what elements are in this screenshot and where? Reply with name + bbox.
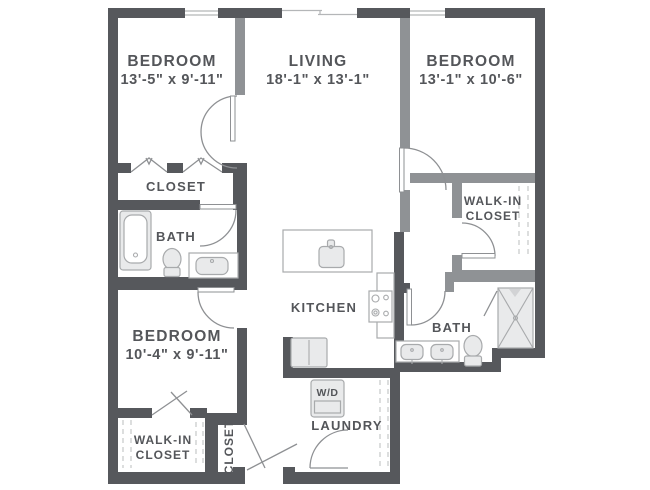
door-leaf-bath-1	[200, 205, 236, 210]
door-arc-laundry	[310, 430, 348, 468]
room-label-closet-1: CLOSET	[146, 179, 206, 194]
room-label-bedroom-3: BEDROOM	[132, 328, 221, 345]
room-label-bath-1: BATH	[156, 229, 196, 244]
door-arc-bath-1	[200, 210, 236, 246]
kitchen-island	[283, 230, 372, 272]
sink-vanity-bath-2	[396, 341, 459, 364]
door-leaf-bedroom-2	[400, 148, 405, 192]
door-leaf-bedroom-3	[198, 288, 234, 293]
toilet-bath-2	[464, 336, 482, 367]
door-leaf-bedroom-1	[231, 96, 236, 141]
island-sink	[319, 247, 344, 268]
door-arc-bedroom-2	[404, 148, 446, 190]
room-dims-bedroom-2: 13'-1" x 10'-6"	[419, 72, 523, 88]
shower	[498, 288, 533, 348]
door-shower	[484, 291, 497, 316]
room-dims-bedroom-1: 13'-5" x 9'-11"	[120, 72, 223, 88]
refrigerator	[291, 338, 327, 367]
room-label-bath-2: BATH	[432, 320, 472, 335]
room-dims-living: 18'-1" x 13'-1"	[266, 72, 370, 88]
door-leaf-bath-2	[407, 289, 412, 325]
room-label-laundry: LAUNDRY	[311, 418, 382, 433]
room-label-closet-2: CLOSET	[222, 420, 236, 475]
window-bedroom-1	[185, 8, 218, 18]
room-label-walkin-2-line1: WALK-IN	[134, 433, 192, 447]
room-label-bedroom-2: BEDROOM	[426, 53, 515, 70]
doors-walkin-2	[152, 391, 192, 415]
window-bedroom-2	[410, 8, 445, 18]
floor-plan-svg: BEDROOM 13'-5" x 9'-11" LIVING 18'-1" x …	[0, 0, 650, 490]
sink-vanity-bath-1	[189, 253, 238, 278]
room-label-walkin-1-line1: WALK-IN	[464, 194, 522, 208]
room-label-bedroom-1: BEDROOM	[127, 53, 216, 70]
room-label-walkin-1-line2: CLOSET	[466, 209, 521, 223]
bathtub	[120, 211, 151, 270]
door-arc-bedroom-3	[198, 292, 234, 328]
door-leaf-closet-2	[244, 424, 265, 468]
room-label-kitchen: KITCHEN	[291, 300, 357, 315]
washer-dryer-label: W/D	[317, 387, 339, 399]
door-leaf-walkin-1	[462, 254, 495, 259]
door-leaf-entry	[247, 444, 297, 470]
door-arc-walkin-1	[462, 223, 495, 256]
room-label-walkin-2-line2: CLOSET	[136, 448, 191, 462]
stove	[369, 291, 392, 322]
room-label-living: LIVING	[289, 53, 348, 70]
toilet-bath-1	[163, 249, 181, 277]
floor-plan: BEDROOM 13'-5" x 9'-11" LIVING 18'-1" x …	[0, 0, 650, 490]
room-dims-bedroom-3: 10'-4" x 9'-11"	[125, 347, 228, 363]
